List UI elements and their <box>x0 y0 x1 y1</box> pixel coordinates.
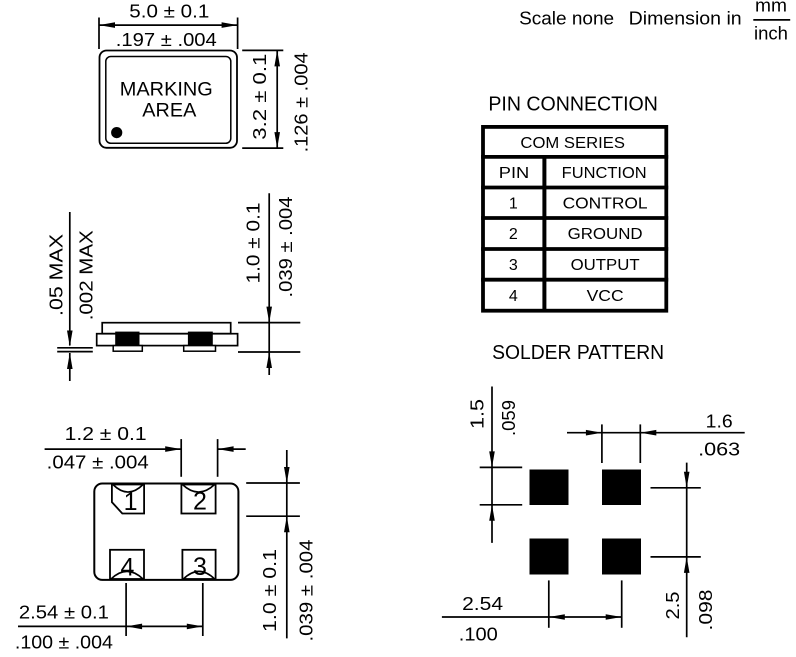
svg-text:.05 MAX: .05 MAX <box>45 233 66 316</box>
svg-text:1.0 ± 0.1: 1.0 ± 0.1 <box>242 203 263 284</box>
svg-text:.197 ± .004: .197 ± .004 <box>116 29 217 50</box>
svg-text:FUNCTION: FUNCTION <box>562 165 647 182</box>
svg-text:OUTPUT: OUTPUT <box>571 257 640 274</box>
svg-text:PIN: PIN <box>499 165 530 182</box>
svg-text:.059: .059 <box>498 400 519 436</box>
svg-text:.100: .100 <box>459 624 498 645</box>
svg-text:.126 ± .004: .126 ± .004 <box>290 52 311 152</box>
svg-text:4: 4 <box>121 554 135 582</box>
svg-text:2.54: 2.54 <box>462 593 503 614</box>
svg-text:VCC: VCC <box>587 288 624 305</box>
svg-text:PIN CONNECTION: PIN CONNECTION <box>488 93 658 115</box>
svg-text:mm: mm <box>755 0 787 15</box>
svg-text:.100 ± .004: .100 ± .004 <box>15 632 113 653</box>
svg-text:1: 1 <box>509 196 518 213</box>
svg-text:1.5: 1.5 <box>466 399 487 429</box>
svg-text:1: 1 <box>124 488 138 516</box>
svg-text:.047 ± .004: .047 ± .004 <box>47 452 149 473</box>
svg-text:.039 ± .004: .039 ± .004 <box>275 197 296 298</box>
svg-text:1.2 ± 0.1: 1.2 ± 0.1 <box>65 423 147 444</box>
svg-text:3: 3 <box>193 553 207 581</box>
svg-text:3.2 ± 0.1: 3.2 ± 0.1 <box>249 54 270 140</box>
svg-text:.098: .098 <box>695 590 716 631</box>
svg-text:.002 MAX: .002 MAX <box>76 230 97 321</box>
svg-text:2.5: 2.5 <box>662 592 683 620</box>
svg-text:COM SERIES: COM SERIES <box>520 135 625 152</box>
svg-text:3: 3 <box>509 257 518 274</box>
svg-text:5.0 ± 0.1: 5.0 ± 0.1 <box>129 1 209 22</box>
svg-text:1.0 ± 0.1: 1.0 ± 0.1 <box>259 549 280 632</box>
svg-text:1.6: 1.6 <box>706 411 733 432</box>
svg-text:.039 ± .004: .039 ± .004 <box>296 540 317 642</box>
svg-text:AREA: AREA <box>142 101 196 122</box>
svg-text:Scale none: Scale none <box>519 7 614 28</box>
svg-text:4: 4 <box>509 288 518 305</box>
svg-text:Dimension in: Dimension in <box>629 7 742 28</box>
svg-text:CONTROL: CONTROL <box>563 196 648 213</box>
svg-text:inch: inch <box>754 22 788 43</box>
svg-text:.063: .063 <box>698 438 740 459</box>
svg-text:GROUND: GROUND <box>568 226 643 243</box>
svg-text:2: 2 <box>193 488 207 516</box>
svg-text:MARKING: MARKING <box>120 80 213 101</box>
svg-text:2: 2 <box>509 226 518 243</box>
svg-text:2.54 ± 0.1: 2.54 ± 0.1 <box>19 602 109 623</box>
svg-text:SOLDER PATTERN: SOLDER PATTERN <box>492 342 664 364</box>
